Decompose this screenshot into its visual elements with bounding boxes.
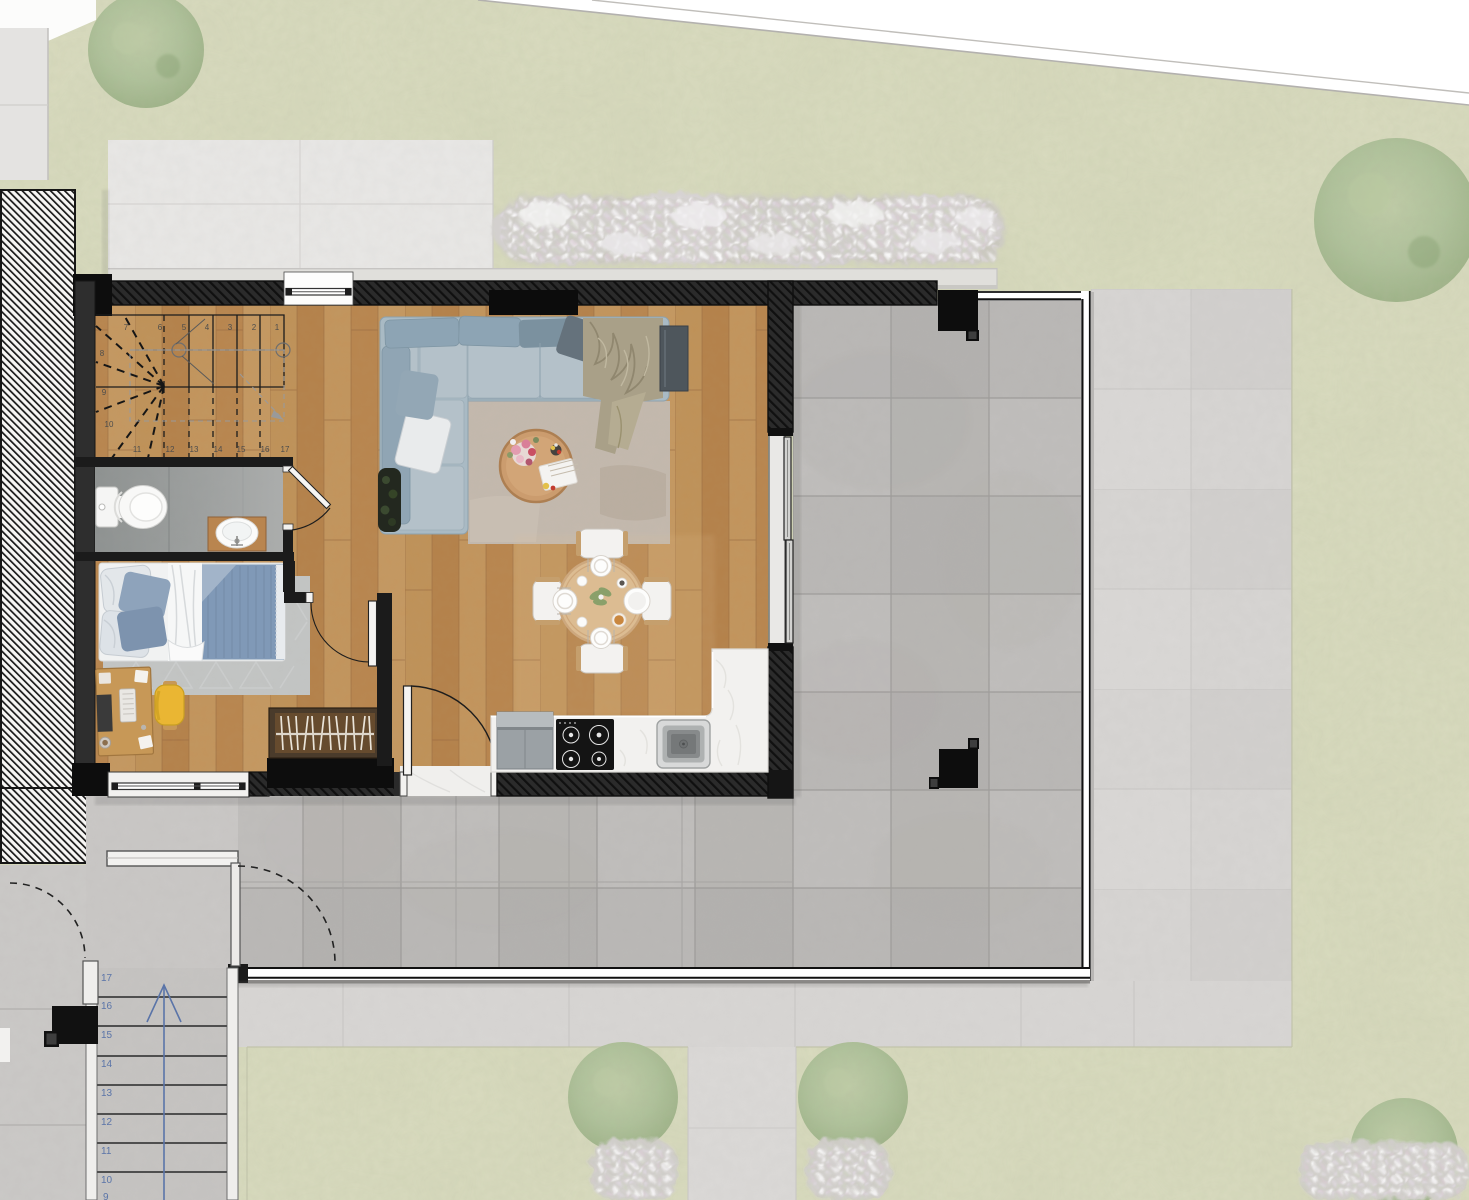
svg-text:16: 16 [261,445,270,454]
svg-text:5: 5 [182,323,187,332]
svg-text:14: 14 [101,1059,113,1070]
svg-text:12: 12 [166,445,175,454]
svg-text:10: 10 [101,1175,113,1186]
svg-text:11: 11 [133,445,142,454]
svg-text:13: 13 [190,445,199,454]
svg-text:4: 4 [205,323,210,332]
svg-text:17: 17 [281,445,290,454]
svg-text:15: 15 [237,445,246,454]
svg-text:8: 8 [100,349,105,358]
svg-text:14: 14 [214,445,223,454]
svg-text:3: 3 [228,323,233,332]
svg-text:12: 12 [101,1117,113,1128]
svg-text:6: 6 [158,323,163,332]
svg-text:2: 2 [252,323,257,332]
svg-text:10: 10 [105,420,114,429]
svg-text:11: 11 [101,1146,112,1157]
svg-text:15: 15 [101,1030,113,1041]
svg-text:17: 17 [101,973,113,984]
svg-text:16: 16 [101,1001,113,1012]
svg-text:7: 7 [124,323,129,332]
svg-text:9: 9 [103,1192,109,1200]
svg-text:1: 1 [275,323,280,332]
svg-text:13: 13 [101,1088,113,1099]
svg-text:9: 9 [102,388,107,397]
